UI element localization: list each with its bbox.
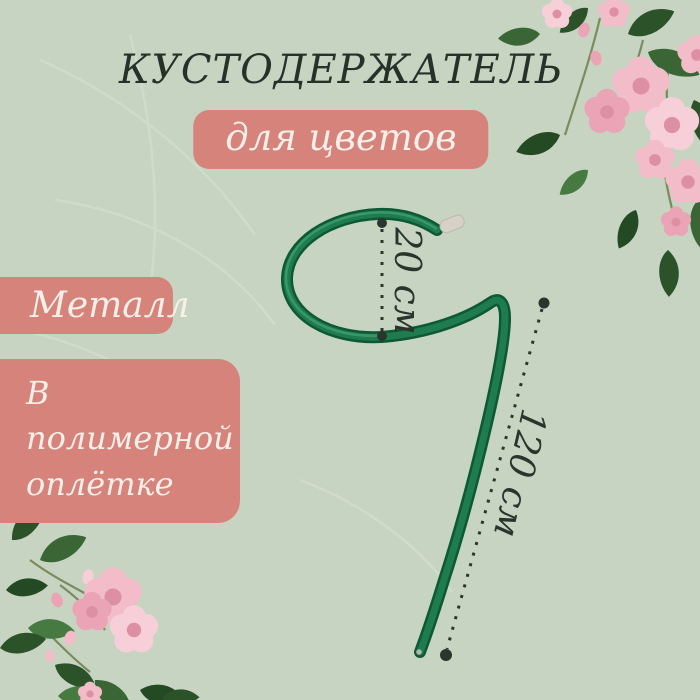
feature-badge-material: Металл xyxy=(0,277,173,334)
subtitle-badge: для цветов xyxy=(193,110,488,169)
dimension-label-hook-diameter: 20 см xyxy=(388,227,424,334)
product-card: КУСТОДЕРЖАТЕЛЬ для цветов Металл В полим… xyxy=(0,0,700,700)
flower-cluster-bottom-left xyxy=(0,501,200,700)
decorative-flowers xyxy=(0,0,700,700)
product-title: КУСТОДЕРЖАТЕЛЬ xyxy=(119,50,563,90)
feature-badge-coating: В полимерной оплётке xyxy=(0,359,240,523)
flower-cluster-top-right xyxy=(498,0,700,298)
